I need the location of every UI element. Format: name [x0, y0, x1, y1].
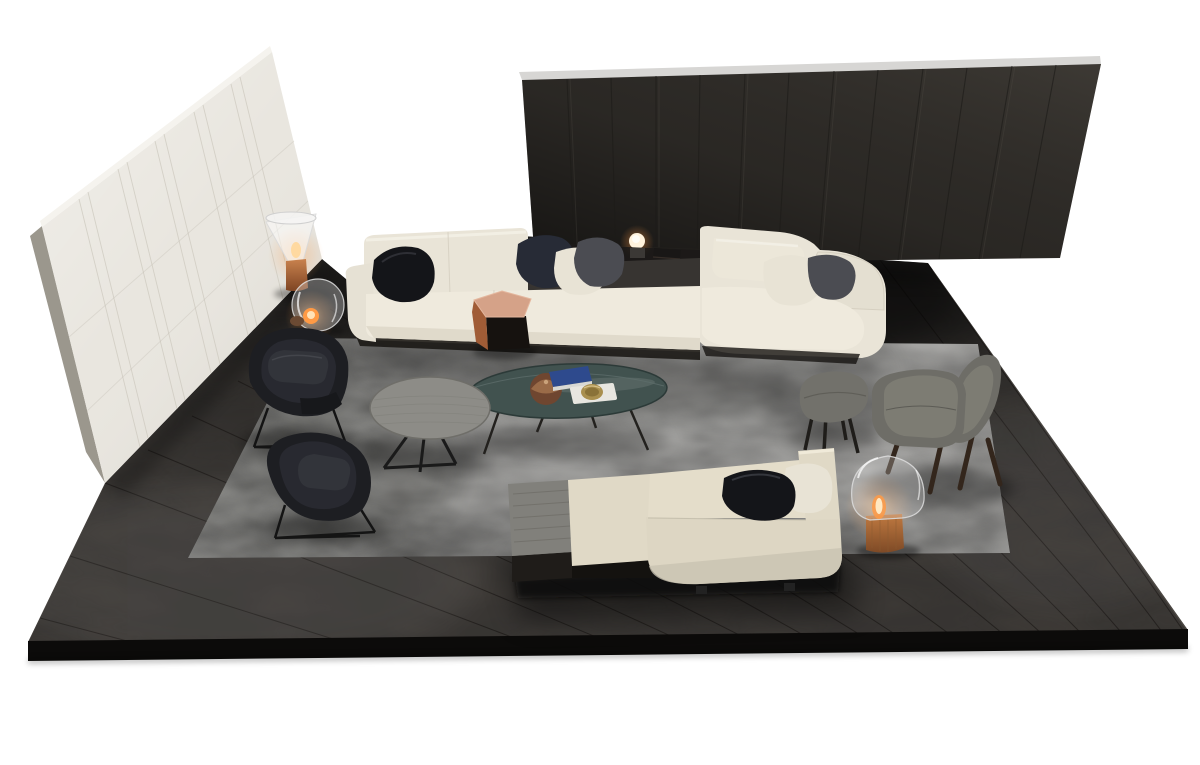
wall-panel-right: [519, 56, 1101, 264]
bubble-lamp-foot: [290, 316, 304, 326]
brass-bowl-inner: [585, 388, 599, 397]
bottom-sofa-foot-right: [784, 583, 795, 591]
bubble-lamp-flame-core: [307, 311, 315, 319]
panel-shading: [522, 64, 1101, 264]
bottom-sofa-foot-left: [696, 586, 707, 594]
dome-lamp-flame-core: [876, 498, 883, 514]
wooden-box-knob: [544, 380, 548, 384]
lounge-chair-cushion: [884, 375, 958, 438]
floor-lamp-cone-top: [266, 212, 316, 224]
floor-lamp-bulb: [291, 242, 301, 258]
pillow-black-left: [372, 247, 435, 303]
bottom-table-front: [512, 552, 572, 582]
ottoman-shadow: [785, 423, 881, 449]
side-table-dark-face: [486, 316, 530, 350]
sphere-lamp-core: [632, 235, 640, 243]
bottom-seat-cushion: [568, 474, 654, 566]
round-table-top: [370, 377, 490, 439]
main-sofa: [346, 226, 886, 364]
showroom-photo: [0, 0, 1200, 765]
pillow-charcoal-mid: [574, 237, 624, 286]
armchair-lower-pillow: [298, 454, 350, 490]
